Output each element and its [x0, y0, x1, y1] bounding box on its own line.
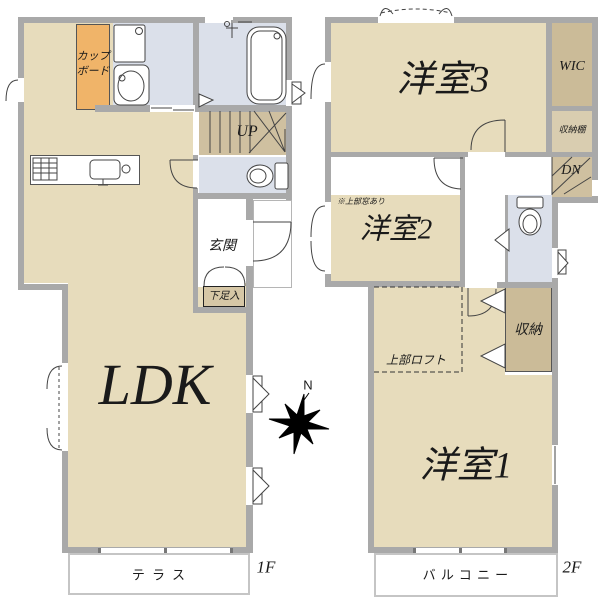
stairs-down-label: DN: [561, 164, 580, 178]
floor-label-2f: 2F: [563, 559, 582, 576]
room-label-western1: 洋室1: [420, 448, 513, 485]
balcony-label: バルコニー: [423, 569, 514, 582]
window-symbols-1f: [98, 82, 305, 553]
plan-linework: [0, 0, 600, 599]
room-label-ldk: LDK: [99, 356, 212, 414]
door-arc: [311, 8, 505, 316]
room-label-western2: 洋室2: [360, 216, 433, 245]
storage-shelf-label: 収納棚: [558, 126, 585, 135]
room-label-western3: 洋室3: [397, 62, 490, 99]
terrace-label: テラス: [132, 569, 192, 582]
toilet-icon-2f: [517, 197, 543, 235]
washing-machine-icon: [114, 25, 145, 62]
washbasin-icon: [114, 65, 149, 105]
kitchen-sink-icon: [90, 160, 130, 185]
stairs-up-label: UP: [236, 124, 257, 140]
wic-label: WIC: [559, 60, 585, 74]
compass-north-label: N: [303, 379, 312, 392]
floor-plan: カップ ボード UP 玄関 下足入 LDK テラス 1F 洋室3 WIC 収納棚…: [0, 0, 600, 599]
floor-label-1f: 1F: [257, 559, 276, 576]
compass-icon: [269, 393, 329, 454]
room-label-shoe-cabinet: 下足入: [208, 292, 240, 303]
room-label-cupboard-1: カップ: [77, 52, 110, 63]
room-label-cupboard-2: ボード: [77, 67, 110, 78]
window-symbols-2f: [413, 229, 568, 553]
room2-note-label: ※上部窓あり: [337, 198, 385, 206]
loft-label: 上部ロフト: [386, 354, 446, 366]
stove-icon: [33, 158, 57, 180]
closet-label: 収納: [514, 324, 542, 338]
toilet-icon-1f: [247, 163, 288, 189]
room-label-entrance: 玄関: [208, 240, 236, 254]
bathtub-icon: [247, 27, 286, 104]
